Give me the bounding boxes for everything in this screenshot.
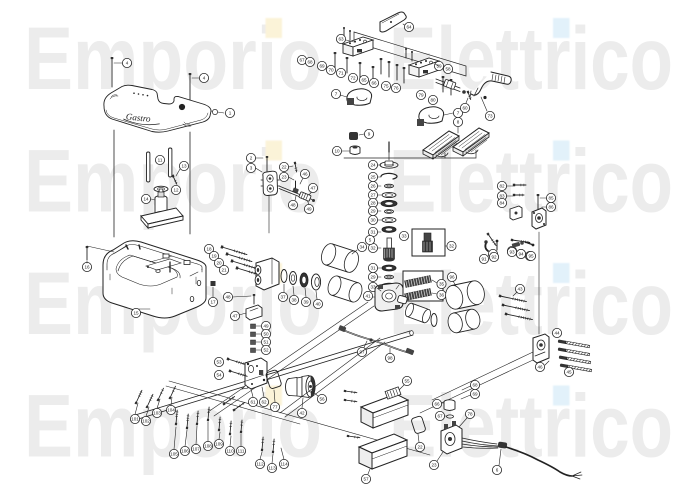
svg-text:80: 80 xyxy=(430,98,436,103)
svg-text:107: 107 xyxy=(192,447,200,452)
svg-text:31: 31 xyxy=(370,230,376,235)
svg-text:52: 52 xyxy=(263,348,269,353)
svg-text:93: 93 xyxy=(509,250,515,255)
svg-text:7: 7 xyxy=(457,111,460,116)
svg-text:70: 70 xyxy=(328,68,334,73)
svg-text:61: 61 xyxy=(250,400,256,405)
svg-text:30: 30 xyxy=(370,218,376,223)
svg-text:66: 66 xyxy=(434,402,440,407)
svg-text:1: 1 xyxy=(229,111,232,116)
svg-text:106: 106 xyxy=(181,449,189,454)
svg-text:68: 68 xyxy=(307,60,313,65)
svg-text:72: 72 xyxy=(350,76,356,81)
svg-text:34: 34 xyxy=(359,245,365,250)
svg-text:4: 4 xyxy=(126,61,129,66)
svg-text:109: 109 xyxy=(215,442,223,447)
svg-text:26: 26 xyxy=(370,184,376,189)
svg-text:38: 38 xyxy=(291,298,297,303)
svg-text:40: 40 xyxy=(315,302,321,307)
svg-text:71: 71 xyxy=(338,71,344,76)
svg-text:50: 50 xyxy=(263,332,269,337)
svg-text:9: 9 xyxy=(368,132,371,137)
svg-text:22: 22 xyxy=(281,165,287,170)
svg-text:73: 73 xyxy=(487,114,493,119)
svg-text:22: 22 xyxy=(417,445,423,450)
svg-text:69: 69 xyxy=(472,392,478,397)
svg-text:47: 47 xyxy=(310,186,316,191)
svg-text:78: 78 xyxy=(467,412,473,417)
svg-text:56: 56 xyxy=(319,397,325,402)
svg-text:31: 31 xyxy=(370,266,376,271)
svg-text:62: 62 xyxy=(261,400,267,405)
svg-text:103: 103 xyxy=(153,411,161,416)
svg-text:64: 64 xyxy=(406,25,412,30)
svg-text:35: 35 xyxy=(439,282,445,287)
svg-text:79: 79 xyxy=(418,93,424,98)
svg-text:108: 108 xyxy=(204,444,212,449)
svg-text:46: 46 xyxy=(302,172,308,177)
svg-text:57: 57 xyxy=(363,477,369,482)
svg-text:110: 110 xyxy=(226,449,234,454)
svg-text:53: 53 xyxy=(216,360,222,365)
svg-text:82: 82 xyxy=(499,184,505,189)
svg-text:12: 12 xyxy=(173,188,179,193)
svg-text:83: 83 xyxy=(499,194,505,199)
svg-text:37: 37 xyxy=(280,295,286,300)
svg-text:76: 76 xyxy=(393,86,399,91)
svg-text:113: 113 xyxy=(268,466,276,471)
svg-text:17: 17 xyxy=(210,300,216,305)
svg-text:44: 44 xyxy=(554,331,560,336)
svg-text:60: 60 xyxy=(462,106,468,111)
svg-text:23: 23 xyxy=(431,463,437,468)
svg-text:48: 48 xyxy=(290,203,296,208)
svg-text:10: 10 xyxy=(334,149,340,154)
svg-text:20: 20 xyxy=(216,261,222,266)
svg-text:96: 96 xyxy=(449,275,455,280)
svg-text:69: 69 xyxy=(319,64,325,69)
svg-text:3: 3 xyxy=(250,166,253,171)
svg-text:95: 95 xyxy=(528,254,534,259)
svg-text:84: 84 xyxy=(499,201,505,206)
svg-text:23: 23 xyxy=(281,175,287,180)
svg-text:51: 51 xyxy=(263,340,269,345)
svg-text:Elettrico: Elettrico xyxy=(389,8,673,108)
svg-text:112: 112 xyxy=(256,462,264,467)
svg-text:46: 46 xyxy=(537,365,543,370)
svg-text:14: 14 xyxy=(143,197,149,202)
svg-text:29: 29 xyxy=(370,209,376,214)
svg-text:5: 5 xyxy=(369,238,372,243)
svg-text:6: 6 xyxy=(496,468,499,473)
svg-text:27: 27 xyxy=(370,193,376,198)
svg-text:58: 58 xyxy=(445,67,451,72)
svg-text:39: 39 xyxy=(303,300,309,305)
svg-text:28: 28 xyxy=(370,201,376,206)
svg-text:29: 29 xyxy=(370,275,376,280)
svg-text:Elettrico: Elettrico xyxy=(389,376,673,476)
svg-text:49: 49 xyxy=(306,207,312,212)
svg-text:77: 77 xyxy=(272,405,278,410)
svg-text:49: 49 xyxy=(263,324,269,329)
svg-text:4: 4 xyxy=(203,76,206,81)
svg-text:48: 48 xyxy=(225,295,231,300)
svg-text:Elettrico: Elettrico xyxy=(389,253,673,353)
svg-text:111: 111 xyxy=(238,449,245,454)
svg-text:21: 21 xyxy=(221,268,227,273)
svg-text:24: 24 xyxy=(370,163,376,168)
svg-text:19: 19 xyxy=(211,254,217,259)
svg-text:54: 54 xyxy=(216,373,222,378)
svg-text:55: 55 xyxy=(404,379,410,384)
svg-text:32: 32 xyxy=(370,246,376,251)
svg-text:15: 15 xyxy=(133,311,139,316)
svg-text:92: 92 xyxy=(491,255,497,260)
svg-text:66: 66 xyxy=(371,81,377,86)
svg-text:104: 104 xyxy=(167,408,175,413)
svg-text:97: 97 xyxy=(359,350,365,355)
svg-text:36: 36 xyxy=(439,293,445,298)
svg-text:16: 16 xyxy=(84,265,90,270)
svg-text:105: 105 xyxy=(170,452,178,457)
svg-text:114: 114 xyxy=(280,462,288,467)
svg-text:43: 43 xyxy=(517,287,523,292)
svg-text:7: 7 xyxy=(335,92,338,97)
svg-text:42: 42 xyxy=(299,411,305,416)
svg-text:94: 94 xyxy=(518,252,524,257)
svg-text:13: 13 xyxy=(181,164,187,169)
svg-text:98: 98 xyxy=(387,356,393,361)
svg-text:101: 101 xyxy=(131,417,139,422)
svg-text:45: 45 xyxy=(566,370,572,375)
svg-text:32: 32 xyxy=(449,244,455,249)
svg-text:67: 67 xyxy=(299,58,305,63)
svg-text:65: 65 xyxy=(361,78,367,83)
svg-text:63: 63 xyxy=(338,37,344,42)
svg-text:25: 25 xyxy=(370,175,376,180)
svg-text:47: 47 xyxy=(232,314,238,319)
svg-text:68: 68 xyxy=(472,383,478,388)
svg-text:2: 2 xyxy=(250,156,253,161)
svg-text:67: 67 xyxy=(437,414,443,419)
svg-text:8: 8 xyxy=(457,120,460,125)
svg-text:86: 86 xyxy=(548,205,554,210)
svg-text:11: 11 xyxy=(158,158,163,163)
svg-text:85: 85 xyxy=(548,196,554,201)
svg-text:102: 102 xyxy=(142,419,150,424)
svg-text:41: 41 xyxy=(365,294,371,299)
svg-text:75: 75 xyxy=(383,84,389,89)
svg-text:33: 33 xyxy=(401,234,407,239)
svg-text:91: 91 xyxy=(481,257,487,262)
svg-text:18: 18 xyxy=(206,247,212,252)
